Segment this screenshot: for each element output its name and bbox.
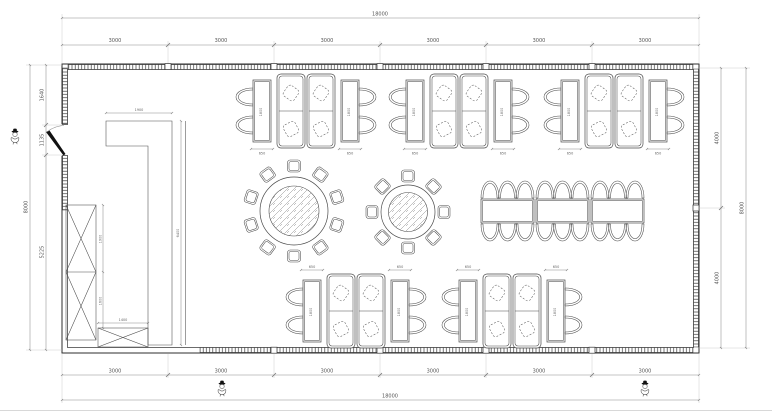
- svg-text:3000: 3000: [533, 369, 546, 375]
- round-table-10: [243, 160, 344, 262]
- dimensions-bottom: 3000 3000 3000 3000 3000 3000 18000: [62, 354, 699, 403]
- svg-text:650: 650: [397, 265, 403, 269]
- svg-text:650: 650: [259, 152, 265, 156]
- cabinet-lower-dim: 1600: [99, 297, 103, 306]
- svg-text:650: 650: [465, 265, 471, 269]
- svg-text:1800: 1800: [465, 308, 469, 317]
- round-table-8: [366, 170, 450, 254]
- bottom-overall-dim: 18000: [382, 394, 398, 400]
- left-wall-band-upper: [63, 68, 68, 124]
- svg-text:1800: 1800: [347, 108, 351, 117]
- svg-text:4000: 4000: [715, 132, 721, 145]
- svg-text:3000: 3000: [109, 38, 122, 44]
- svg-text:3000: 3000: [109, 369, 122, 375]
- svg-text:650: 650: [347, 152, 353, 156]
- svg-text:1800: 1800: [500, 108, 504, 117]
- dimensions-left: 8000 1640 1135 5225: [24, 65, 63, 350]
- svg-text:1640: 1640: [40, 89, 46, 102]
- svg-text:3000: 3000: [533, 38, 546, 44]
- svg-text:1800: 1800: [567, 108, 571, 117]
- svg-text:1800: 1800: [309, 308, 313, 317]
- left-overall-dim: 8000: [24, 201, 30, 214]
- banquet-chairs-top: [481, 181, 644, 198]
- svg-text:1800: 1800: [412, 108, 416, 117]
- floor-plan-drawing: 1900 6400 1900 1600 1400 650 650 650 650: [0, 0, 772, 414]
- svg-text:3000: 3000: [427, 38, 440, 44]
- svg-text:3000: 3000: [321, 38, 334, 44]
- lazy-susan: [389, 193, 428, 232]
- top-overall-dim: 18000: [372, 12, 388, 18]
- svg-text:650: 650: [412, 152, 418, 156]
- left-wall-band-lower: [63, 155, 68, 210]
- dimensions-right: 4000 4000 8000: [699, 68, 750, 348]
- dimensions-top: 18000 3000 3000 3000 3000 3000 3000: [62, 12, 699, 64]
- counter-width-dim: 1900: [135, 108, 144, 112]
- counter-length-dim: 6400: [176, 229, 180, 238]
- banquet-table-row: [481, 181, 644, 241]
- person-bottom-left: [218, 381, 226, 397]
- svg-text:1800: 1800: [553, 308, 557, 317]
- svg-text:3000: 3000: [215, 38, 228, 44]
- svg-text:4000: 4000: [715, 272, 721, 285]
- svg-text:1135: 1135: [40, 134, 46, 147]
- lazy-susan: [269, 186, 319, 236]
- svg-text:650: 650: [500, 152, 506, 156]
- svg-text:1800: 1800: [655, 108, 659, 117]
- cabinet-box-dim: 1400: [119, 318, 128, 322]
- svg-text:650: 650: [567, 152, 573, 156]
- svg-text:3000: 3000: [427, 369, 440, 375]
- svg-text:650: 650: [309, 265, 315, 269]
- svg-text:3000: 3000: [215, 369, 228, 375]
- booth-row-bottom: 650 650 650 650 1800 1800 1800 1800: [286, 265, 582, 348]
- storage-cabinets: 1900 1600 1400: [66, 205, 148, 347]
- svg-text:3000: 3000: [321, 369, 334, 375]
- banquet-chairs-bottom: [481, 224, 644, 241]
- svg-text:650: 650: [655, 152, 661, 156]
- person-bottom-right: [641, 381, 649, 397]
- person-at-door: [11, 129, 19, 145]
- svg-text:650: 650: [553, 265, 559, 269]
- right-overall-dim: 8000: [740, 202, 746, 215]
- svg-text:3000: 3000: [639, 38, 652, 44]
- booth-row-top: 650 650 650 650 650 650 1800 1800 1800 1…: [236, 74, 684, 156]
- svg-text:3000: 3000: [639, 369, 652, 375]
- floor-plan-canvas: 1900 6400 1900 1600 1400 650 650 650 650: [0, 0, 772, 414]
- cabinet-upper-dim: 1900: [99, 235, 103, 244]
- svg-text:5225: 5225: [40, 246, 46, 259]
- svg-text:1800: 1800: [259, 108, 263, 117]
- svg-text:1800: 1800: [397, 308, 401, 317]
- service-counter: 1900 6400: [106, 108, 186, 345]
